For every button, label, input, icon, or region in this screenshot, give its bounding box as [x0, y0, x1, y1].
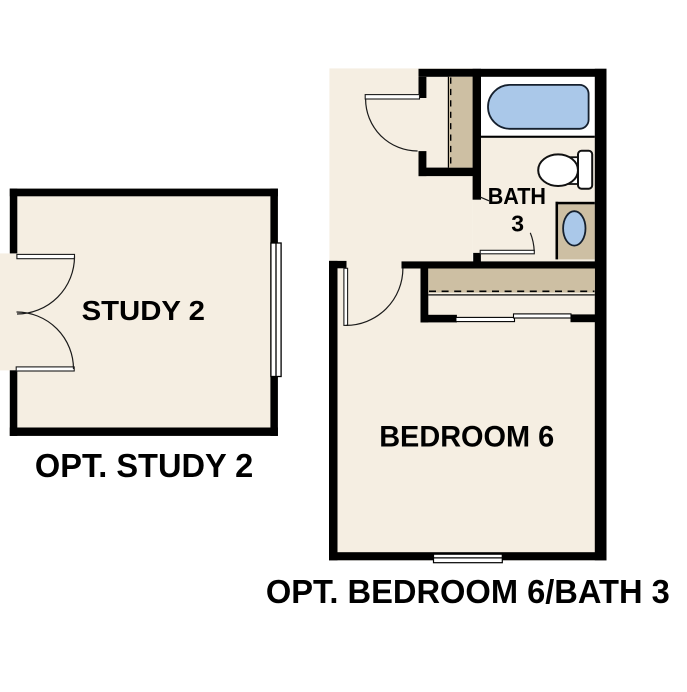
svg-text:STUDY 2: STUDY 2	[82, 295, 205, 326]
svg-text:OPT. STUDY 2: OPT. STUDY 2	[35, 448, 253, 485]
svg-text:3: 3	[511, 211, 524, 237]
svg-text:BATH: BATH	[488, 183, 546, 209]
svg-text:BEDROOM 6: BEDROOM 6	[379, 421, 554, 454]
svg-text:OPT. BEDROOM 6/BATH 3: OPT. BEDROOM 6/BATH 3	[266, 574, 670, 611]
